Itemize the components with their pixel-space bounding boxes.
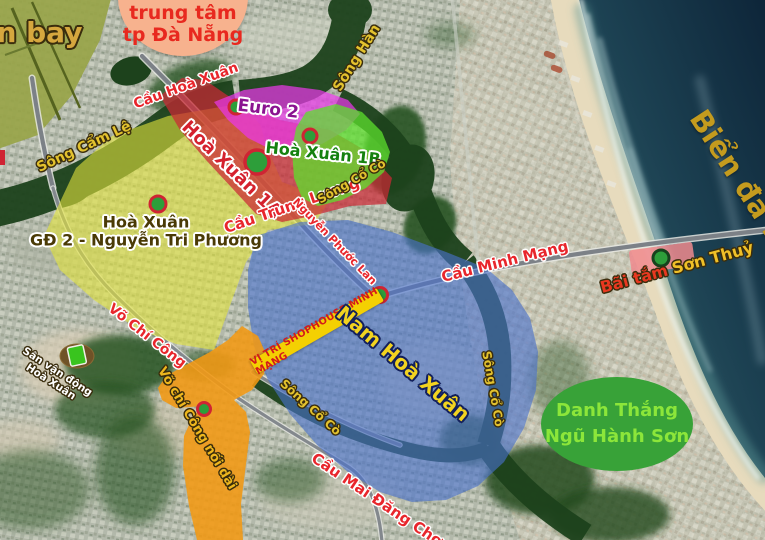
label-city-center-line1: trung tâm	[123, 3, 244, 25]
marker-gd2-icon	[150, 196, 166, 212]
label-city-center: trung tâm tp Đà Nẵng	[123, 3, 244, 47]
label-danh-thang-line2: Ngũ Hành Sơn	[545, 424, 689, 450]
label-city-center-line2: tp Đà Nẵng	[123, 25, 244, 47]
stadium-icon	[60, 344, 94, 368]
danh-thang-oval: Danh Thắng Ngũ Hành Sơn	[541, 377, 693, 471]
clipped-label-fragment	[0, 150, 5, 165]
label-airport: àn bay	[0, 17, 82, 49]
marker-vcc-extension-icon	[198, 403, 211, 416]
label-danh-thang-line1: Danh Thắng	[556, 398, 678, 424]
da-nang-project-map: àn bay trung tâm tp Đà Nẵng Sông Hàn Cầu…	[0, 0, 765, 540]
